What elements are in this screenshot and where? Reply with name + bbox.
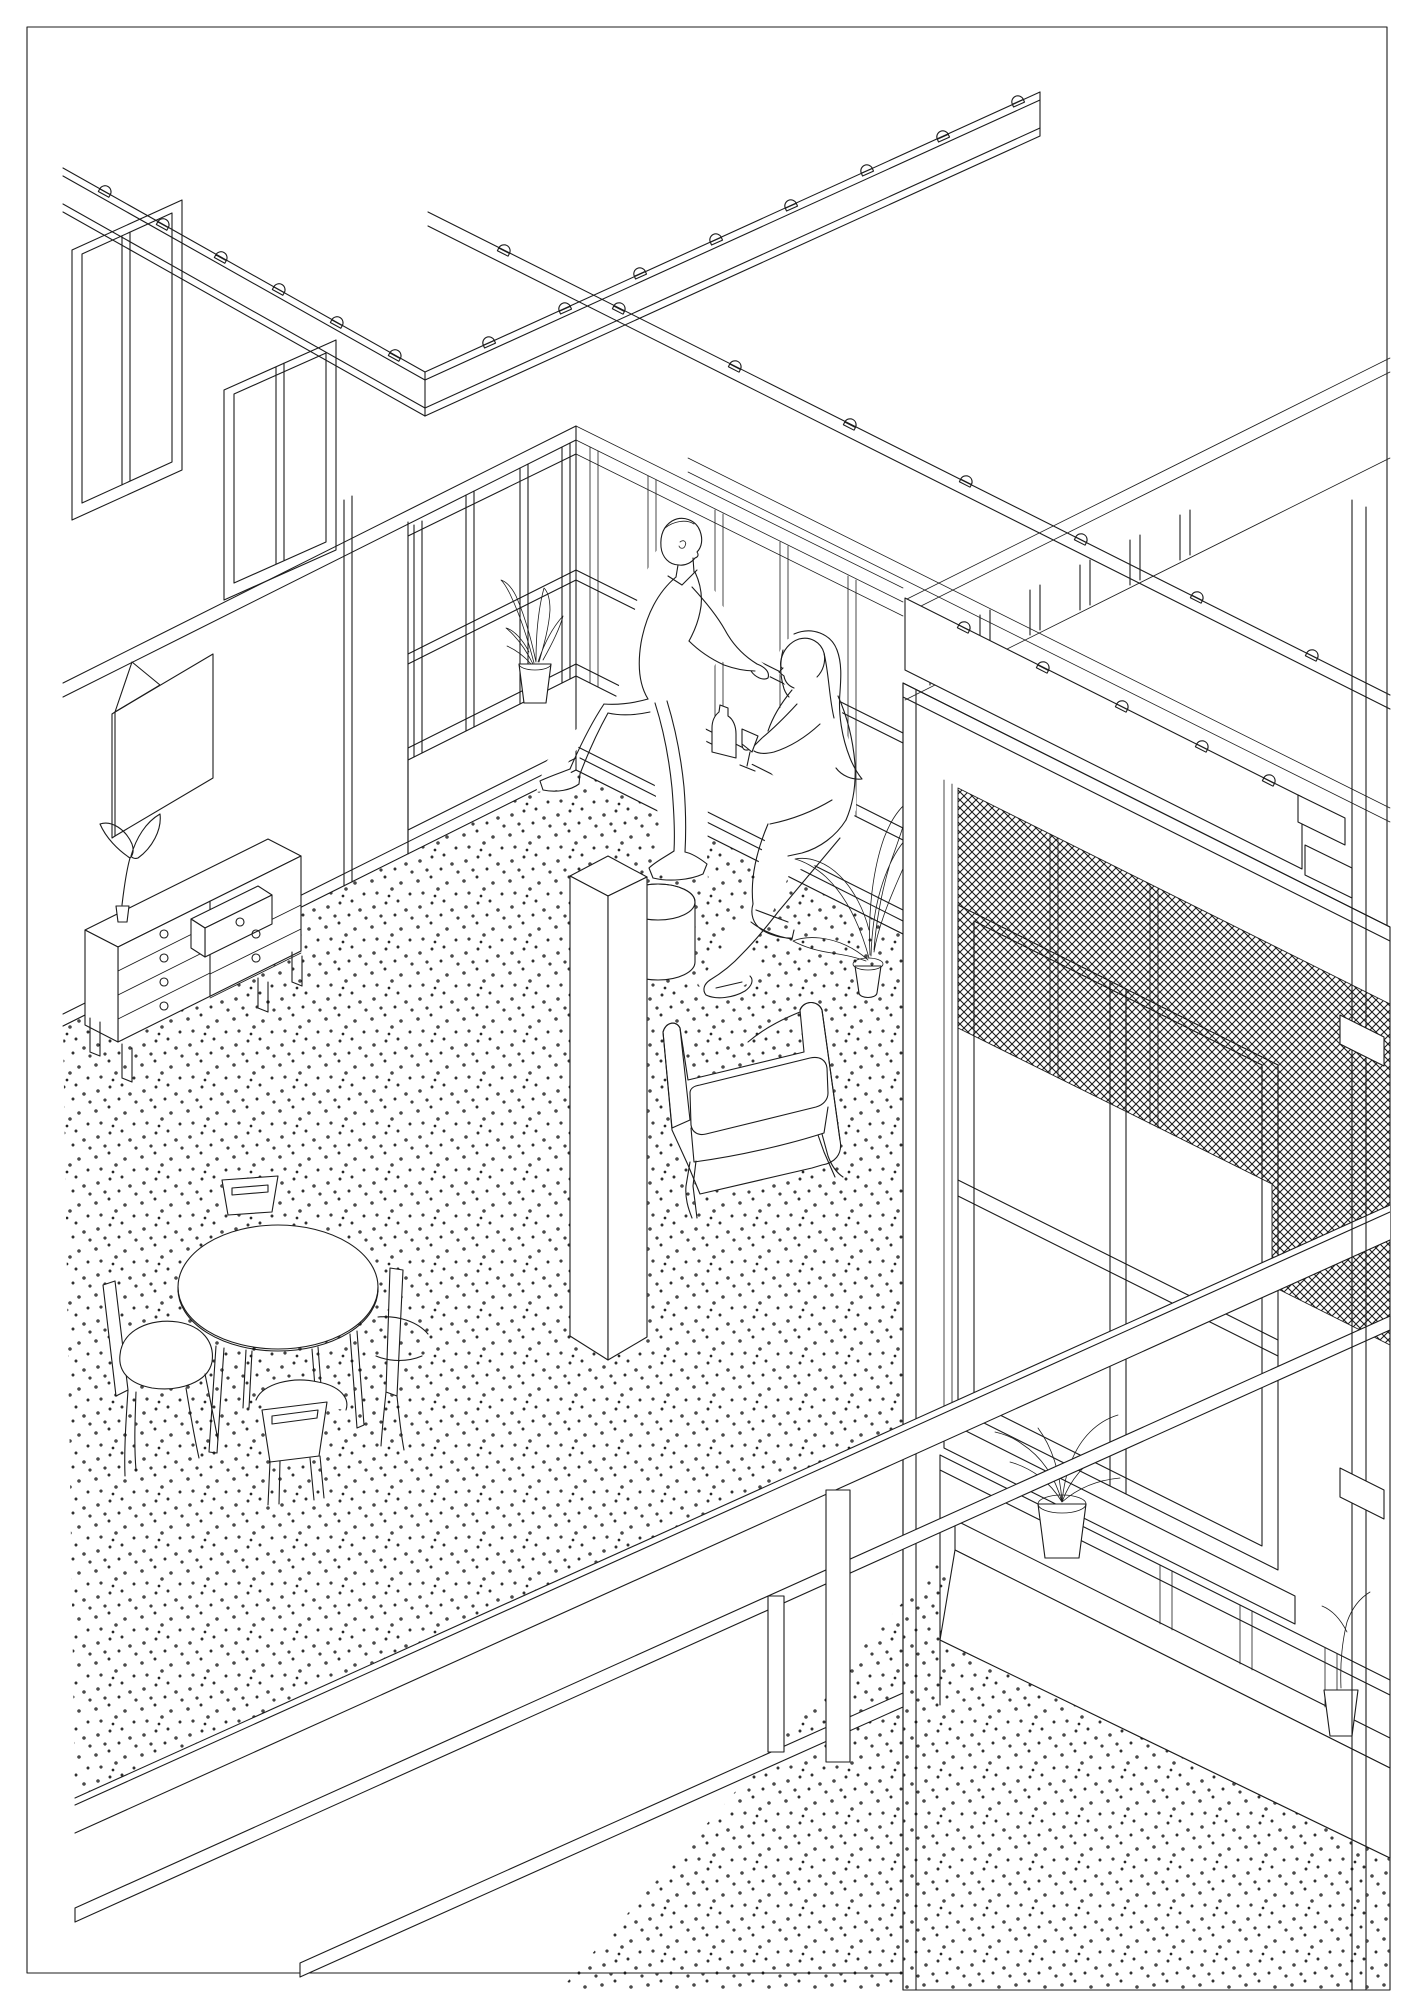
poster-sheet: [115, 654, 213, 836]
post-2: [826, 1490, 850, 1762]
parapet-vertex: [425, 92, 1040, 416]
window-wall-head: [576, 426, 903, 616]
poster-frame: [112, 654, 213, 838]
column-left-face: [570, 876, 608, 1360]
parapet-left-arm-lines: [63, 168, 425, 416]
clerestory-window-2: [224, 340, 336, 600]
wine-bottle-body: [712, 705, 736, 758]
chair-back: [222, 1176, 278, 1215]
dresser-plant-pot: [116, 906, 129, 922]
floor-plant-pot: [855, 966, 881, 998]
dresser-plant-stem: [122, 858, 130, 905]
drawing-sheet: [0, 0, 1414, 2000]
parapet-right-arm-lines: [425, 92, 1040, 416]
corner-glazing-midrail: [408, 570, 576, 664]
chair-back-rest: [222, 1176, 278, 1215]
corner-glazing-head: [408, 454, 576, 536]
chair-front-back: [262, 1402, 327, 1462]
scene: [63, 92, 1390, 1990]
seedling-pot: [1324, 1690, 1358, 1736]
table-top: [178, 1225, 378, 1349]
parapet-clips: [98, 94, 1024, 361]
chair-left-seat: [120, 1321, 213, 1389]
roof-parapet: [63, 92, 1040, 416]
axonometric-drawing: [0, 0, 1414, 2000]
rear-wing-windows: [72, 200, 352, 886]
column: [570, 856, 647, 1360]
wine-bottle: [712, 705, 736, 758]
post-1: [768, 1596, 784, 1752]
left-wall-top-edge: [63, 426, 576, 697]
fascia-end-bracket: [1298, 795, 1352, 898]
column-right-face: [608, 877, 647, 1360]
snake-plant: [501, 580, 563, 703]
spider-plant-pot: [1038, 1504, 1086, 1558]
